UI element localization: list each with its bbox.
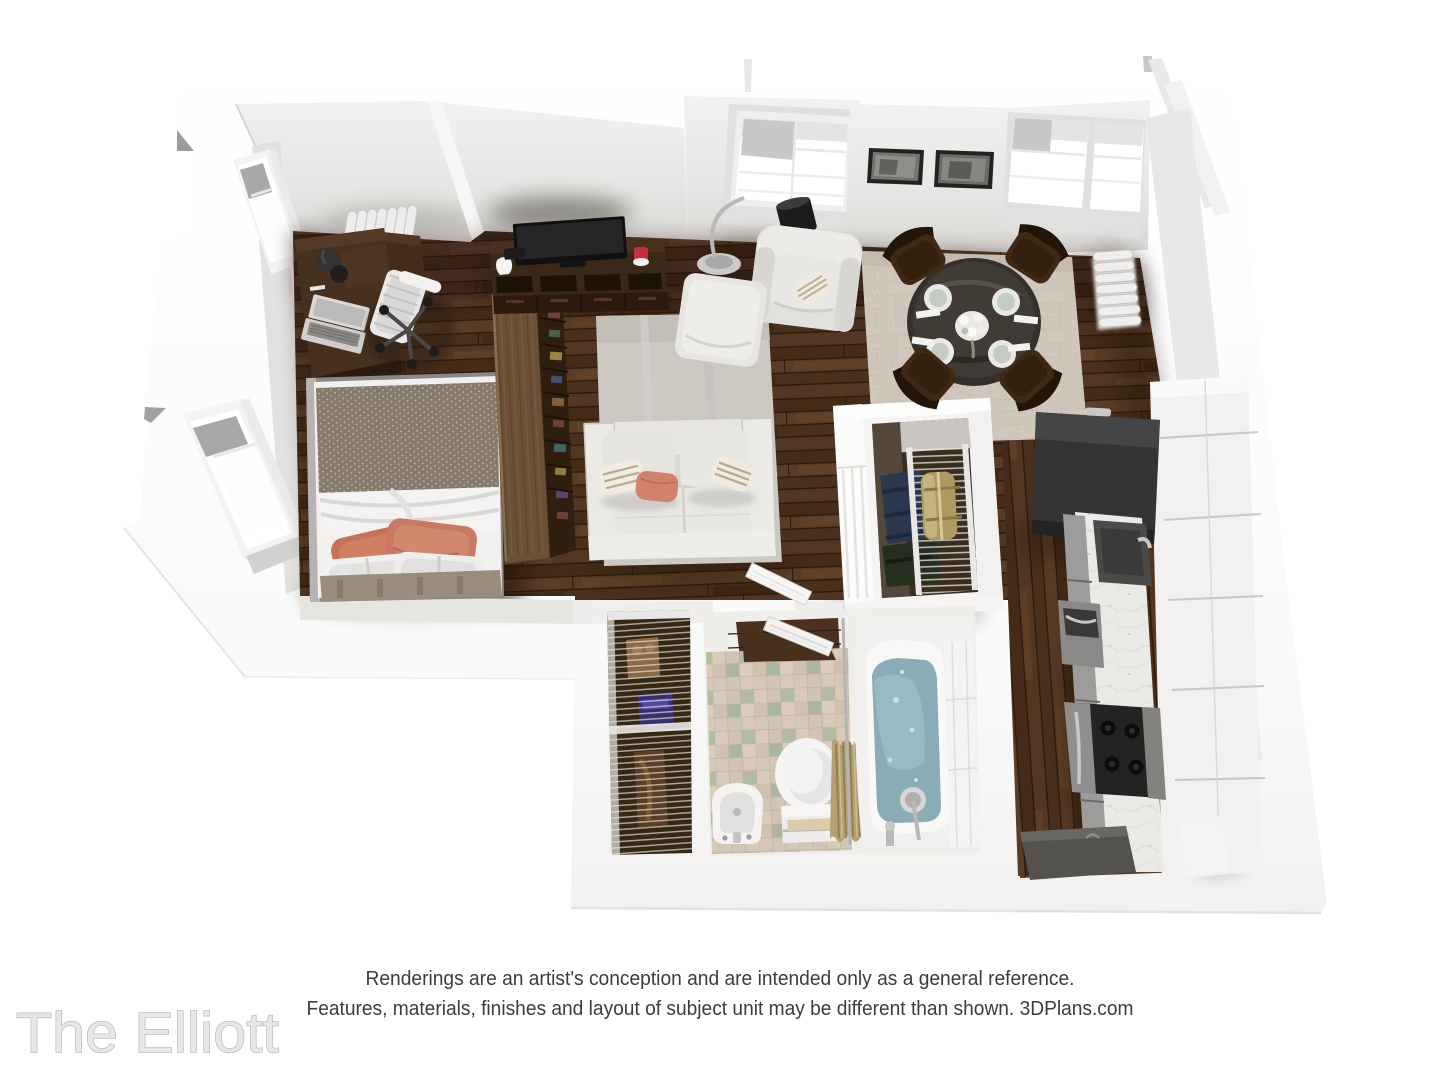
svg-text:Features, materials, finishes: Features, materials, finishes and layout… [307,998,1134,1020]
svg-text:The Elliott: The Elliott [16,1001,279,1065]
svg-text:Renderings are an artist's con: Renderings are an artist's conception an… [366,968,1075,990]
